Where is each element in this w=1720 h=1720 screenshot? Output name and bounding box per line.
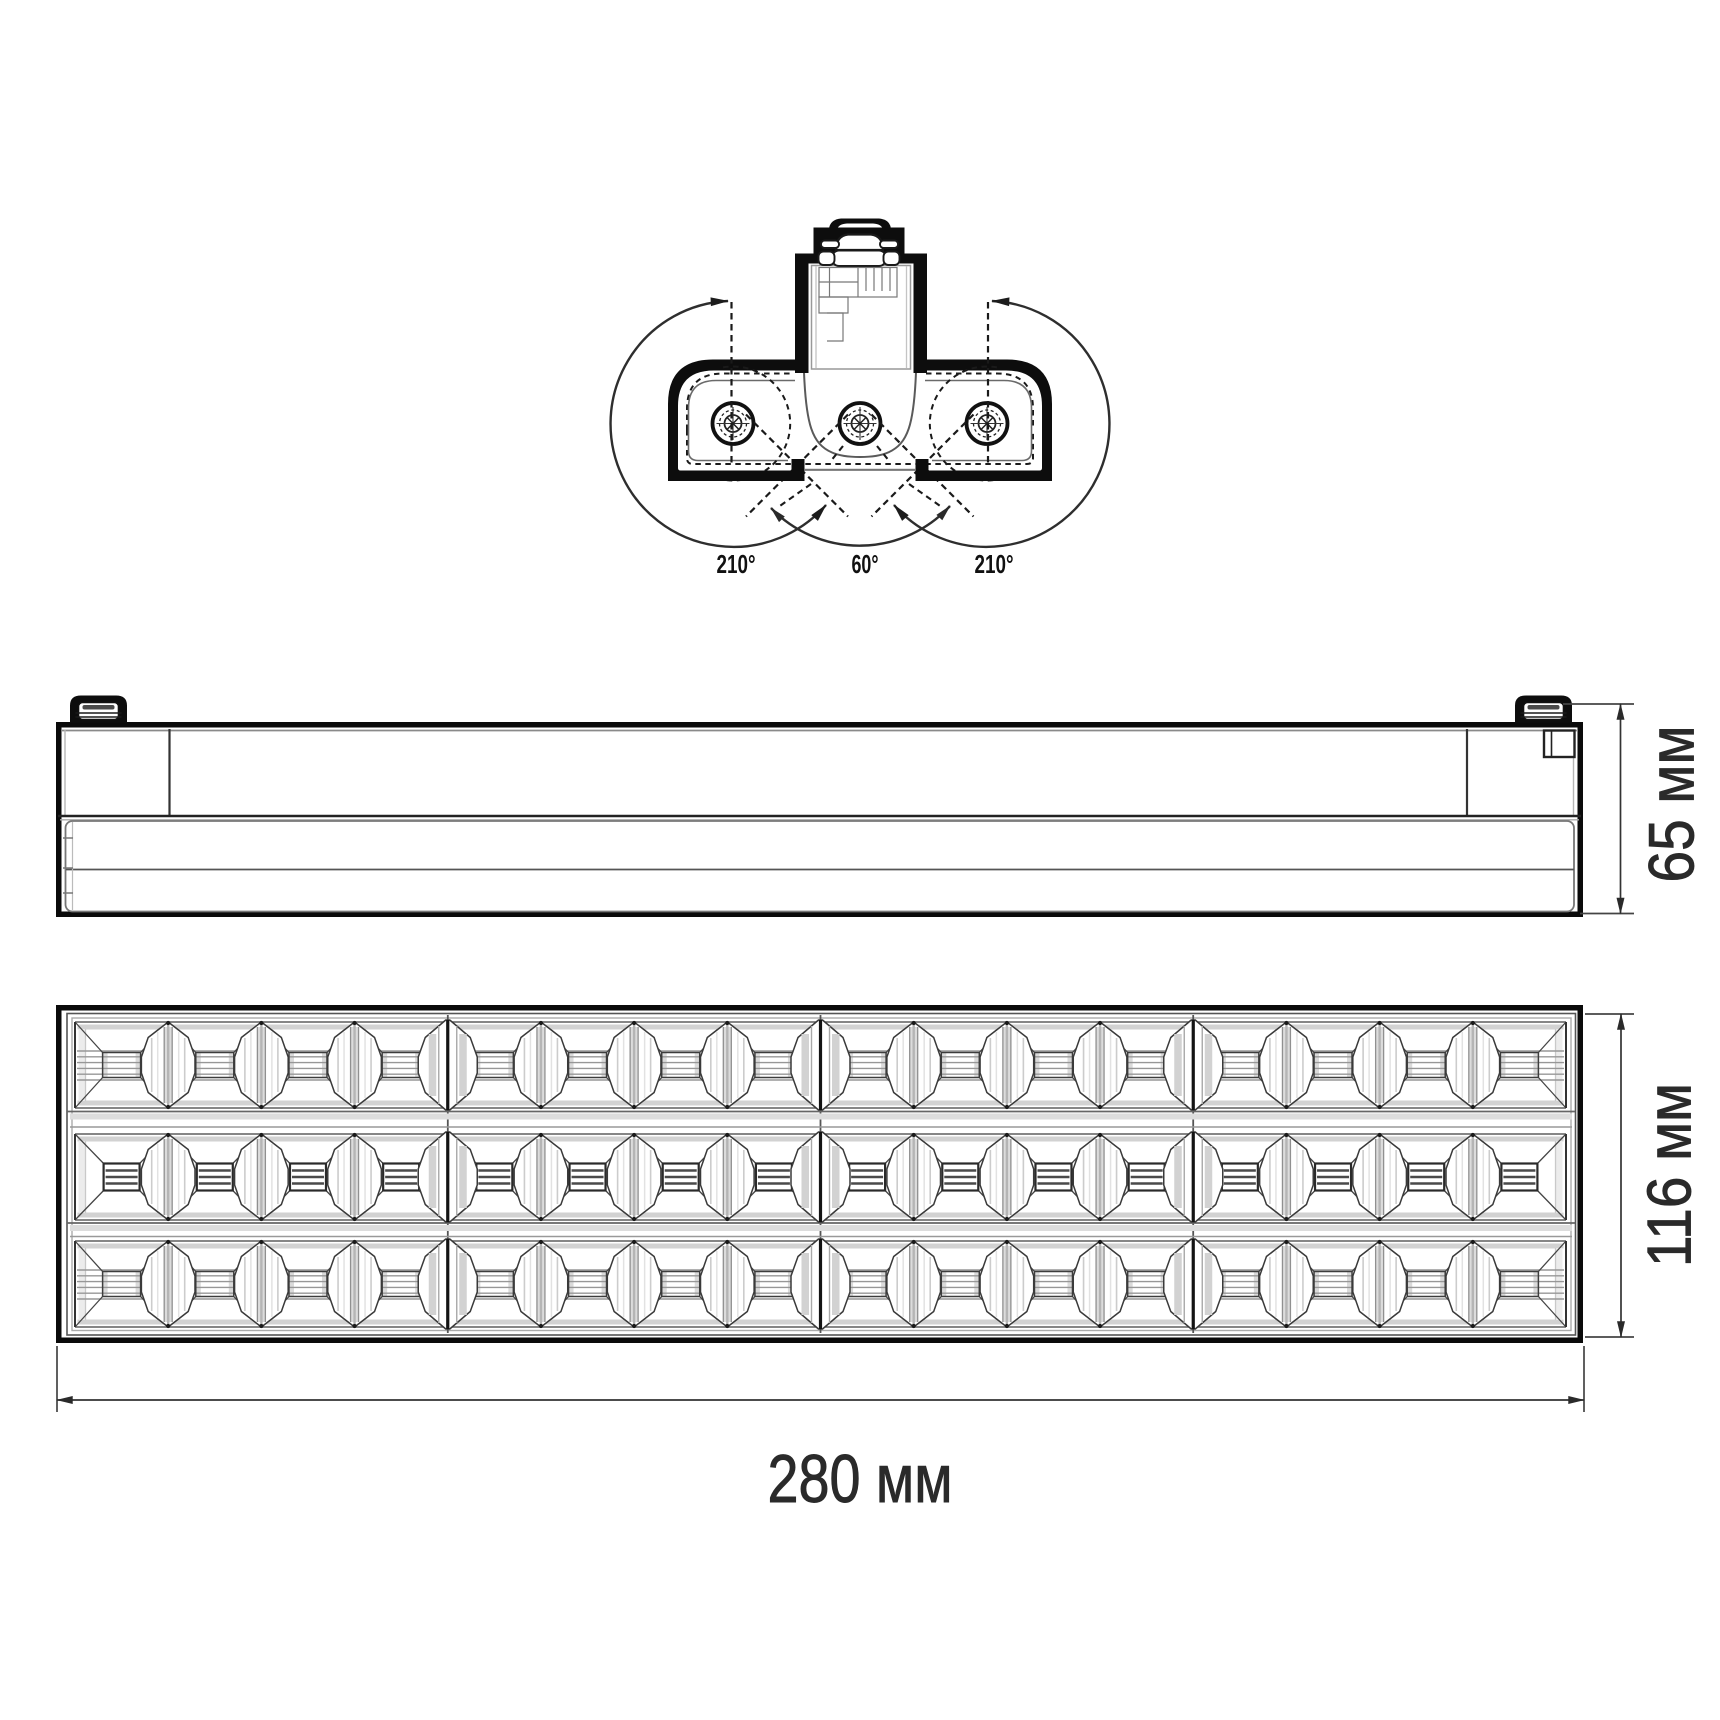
svg-text:60°: 60° xyxy=(852,549,879,579)
svg-text:116 мм: 116 мм xyxy=(1636,1083,1705,1267)
svg-text:65 мм: 65 мм xyxy=(1636,726,1708,883)
svg-text:280 мм: 280 мм xyxy=(768,1441,953,1517)
svg-text:210°: 210° xyxy=(717,549,756,579)
svg-text:210°: 210° xyxy=(975,549,1014,579)
